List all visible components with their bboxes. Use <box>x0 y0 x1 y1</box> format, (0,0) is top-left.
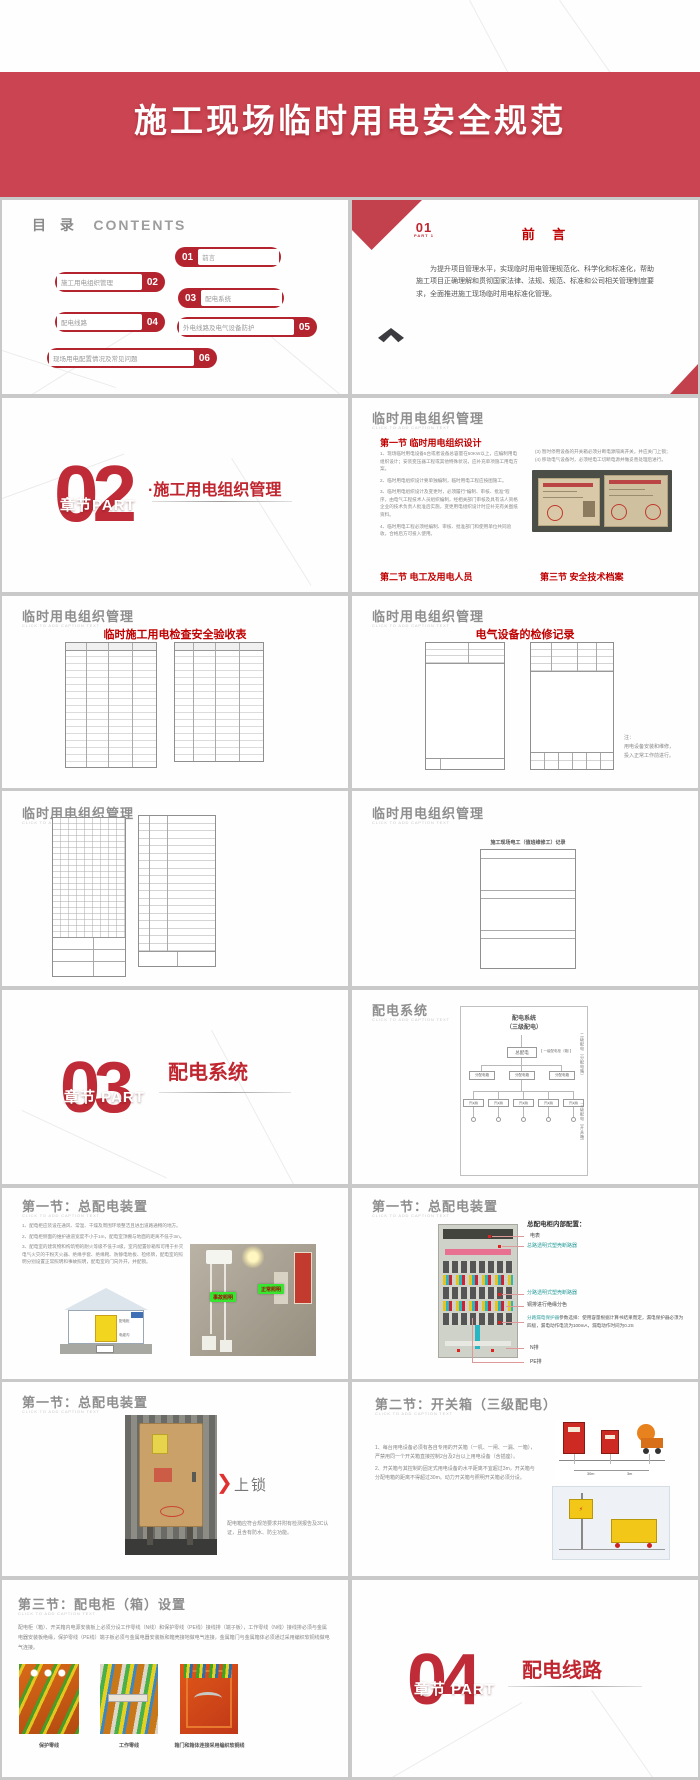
switch-room-diagram: 配电柜 电缆沟 <box>60 1288 152 1354</box>
section1-heading: 第一节 临时用电组织设计 <box>380 436 482 449</box>
body-paragraph: 2、配电柜侧面的维护通道宽度不小于1m，配电室顶棚与地面的距离不低于3m。 <box>22 1233 187 1241</box>
contents-heading-cn: 目 录 <box>32 217 79 233</box>
diagram-sub-box: 分配电箱 <box>549 1071 575 1080</box>
slide-main-dist-3[interactable]: 第一节：总配电装置 CLICK TO ADD CAPTION TEXT ❯ 上锁… <box>2 1382 348 1576</box>
diagram-trench-label: 电缆沟 <box>119 1333 130 1338</box>
toc-item-01[interactable]: 01 前言 <box>175 247 281 267</box>
section-title: 配电线路 <box>522 1654 602 1683</box>
section-title: ·施工用电组织管理 <box>148 476 281 500</box>
body-paragraph: 3、临时用电组织设计及变更时，必须履行“编制、审核、批准”程序，由电气工程技术人… <box>380 488 518 518</box>
photo-caption: 工作零线 <box>100 1742 158 1749</box>
body-paragraph: 2、临时用电组织设计要单独编制，临时用电工程应按图施工。 <box>380 477 518 485</box>
slide-contents[interactable]: 目 录 CONTENTS 01 前言 施工用电组织管理 02 03 配电系统 配… <box>2 200 348 394</box>
toc-item-03[interactable]: 03 配电系统 <box>178 288 284 308</box>
cover-title: 施工现场临时用电安全规范 <box>0 94 700 142</box>
slide-caption: CLICK TO ADD CAPTION TEXT <box>372 425 450 430</box>
cabinet-interior-photo <box>438 1224 518 1358</box>
lighting-photo: 事故照明 正常照明 <box>190 1244 316 1356</box>
checklist-table-left <box>65 642 157 768</box>
toc-num: 04 <box>142 317 163 328</box>
slide-repair-record[interactable]: 临时用电组织管理 CLICK TO ADD CAPTION TEXT 电气设备的… <box>352 596 698 788</box>
slide-section-03[interactable]: 03 章节 PART 配电系统 <box>2 990 348 1184</box>
yellow-box-diagram: ⚡ <box>552 1486 670 1560</box>
toc-label: 配电线路 <box>57 314 142 330</box>
cabinet-config-heading: 总配电柜内部配置： <box>527 1218 586 1228</box>
dimension-label-3m: 3m <box>627 1472 632 1476</box>
slide-caption: CLICK TO ADD CAPTION TEXT <box>22 1213 100 1218</box>
repair-heading: 电气设备的检修记录 <box>352 626 698 642</box>
checklist-table-right <box>174 642 264 762</box>
label-busbar: 铜排进行绝缘分色 <box>527 1301 567 1310</box>
body-paragraph: (3) 暂时停用设备的开关箱必须分断电源隔离开关，并应关门上锁； <box>535 448 683 456</box>
red-triangle-decor <box>352 200 422 250</box>
toc-label: 配电系统 <box>201 290 282 306</box>
slide-caption: CLICK TO ADD CAPTION TEXT <box>375 1411 453 1416</box>
repair-form-left <box>425 642 505 770</box>
label-rcd-head: 分路漏电保护器 <box>527 1315 559 1320</box>
dimension-label-30m: 30m <box>587 1472 594 1476</box>
toc-num: 02 <box>142 277 163 288</box>
toc-num: 01 <box>177 252 198 263</box>
diagram-switch-box: 开关箱 <box>513 1099 534 1107</box>
section-chapter: 章节 PART <box>64 1086 145 1107</box>
diagram-sub-box: 分配电箱 <box>469 1071 495 1080</box>
section-title: 配电系统 <box>168 1056 248 1085</box>
slide-main-dist-1[interactable]: 第一节：总配电装置 CLICK TO ADD CAPTION TEXT 1、配电… <box>2 1188 348 1379</box>
slide-cover[interactable]: 施工现场临时用电安全规范 <box>0 0 700 197</box>
checklist-heading: 临时施工用电检查安全验收表 <box>2 626 348 642</box>
part-mark: 01 PART 1 <box>414 220 434 238</box>
dark-chevron-decor <box>378 328 404 350</box>
arrow-right-icon: ❯ <box>216 1470 233 1495</box>
body-paragraph: 配电柜（箱）、开关箱内电源安装板上必须分设工作零线（N线）和保护零线（PE线）接… <box>18 1624 330 1653</box>
diagram-switch-box: 开关箱 <box>488 1099 509 1107</box>
repair-note: 注： 用电设备安装和维修， 投入正常工作前进行。 <box>624 734 690 761</box>
section3-heading: 第三节 安全技术档案 <box>540 570 624 583</box>
toc-label: 前言 <box>198 249 279 265</box>
record-row-table <box>138 815 216 967</box>
diagram-level3-label: 三级配电（开关箱） <box>579 1103 585 1167</box>
diagram-cabinet-label: 配电柜 <box>119 1319 130 1324</box>
toc-label: 现场用电配置情况及常见问题 <box>49 350 194 366</box>
label-meter: 电表 <box>530 1232 540 1241</box>
preface-body: 为提升项目管理水平，实现临时用电管理规范化、科学化和标准化，帮助施工项目正确理解… <box>416 264 654 301</box>
photo-working-neutral <box>100 1664 158 1734</box>
label-pe-bar: PE排 <box>530 1358 542 1367</box>
slide-org-mgmt[interactable]: 临时用电组织管理 CLICK TO ADD CAPTION TEXT 第一节 临… <box>352 398 698 592</box>
record-grid-table <box>52 817 126 977</box>
slide-main-dist-2[interactable]: 第一节：总配电装置 CLICK TO ADD CAPTION TEXT 总配电柜… <box>352 1188 698 1379</box>
slide-section-04[interactable]: 04 章节 PART 配电线路 <box>352 1580 698 1777</box>
dist-diagram: 配电系统 （三级配电） 总配电 【 一级配电柜（箱）】 分配电箱 分配电箱 分配… <box>460 1006 588 1176</box>
callout-normal-lighting: 正常照明 <box>258 1284 284 1294</box>
red-corner-decor <box>670 364 698 394</box>
cover-banner: 施工现场临时用电安全规范 <box>0 72 700 197</box>
slide-electrician-record[interactable]: 临时用电组织管理 CLICK TO ADD CAPTION TEXT 施工现场电… <box>352 791 698 986</box>
body-paragraph: 4、临时用电工程必须经编制、审核、批准部门和使用单位共同验收，合格后方可投入使用… <box>380 523 518 538</box>
photo-door-bond <box>180 1664 238 1734</box>
slide-section-02[interactable]: 02 章节PART ·施工用电组织管理 <box>2 398 348 592</box>
body-paragraph: 2、开关箱与其控制的固定式用电设备的水平距离不宜超过3m，开关箱与分配电箱的距离… <box>375 1465 537 1483</box>
deco-line <box>211 1030 296 1184</box>
electrician-form-title: 施工现场电工（值班维修工）记录 <box>452 839 604 846</box>
certificates-photo <box>532 470 672 532</box>
slide-preface[interactable]: 01 PART 1 前 言 为提升项目管理水平，实现临时用电管理规范化、科学化和… <box>352 200 698 394</box>
diagram-switch-box: 开关箱 <box>538 1099 559 1107</box>
slide-dist-system[interactable]: 配电系统 CLICK TO ADD CAPTION TEXT 配电系统 （三级配… <box>352 990 698 1184</box>
box-note: 配电箱应符合规范要求并附有检测报告及3C认证，且含有防水、防尘功能。 <box>227 1520 335 1538</box>
toc-item-04[interactable]: 配电线路 04 <box>55 312 165 332</box>
photo-protective-neutral <box>19 1664 79 1734</box>
divider-line <box>152 501 292 502</box>
lock-label: 上锁 <box>234 1474 268 1495</box>
contents-heading-en: CONTENTS <box>93 217 186 233</box>
deco-line <box>591 1690 684 1777</box>
slide-switch-box[interactable]: 第二节：开关箱（三级配电） CLICK TO ADD CAPTION TEXT … <box>352 1382 698 1576</box>
toc-item-05[interactable]: 外电线路及电气设备防护 05 <box>177 317 317 337</box>
toc-num: 06 <box>194 353 215 364</box>
section-chapter: 章节 PART <box>414 1678 495 1699</box>
label-branch-breaker: 分路透明式塑壳断路器 <box>527 1289 577 1298</box>
diagram-level2-label: 二级配电（分配电箱） <box>579 1033 585 1089</box>
label-main-breaker: 总路透明式塑壳断路器 <box>527 1242 577 1251</box>
section2-heading: 第二节 电工及用电人员 <box>380 570 473 583</box>
toc-num: 03 <box>180 293 201 304</box>
outdoor-box-photo <box>125 1415 217 1555</box>
toc-label: 外电线路及电气设备防护 <box>179 319 294 335</box>
body-paragraph: 1、现场临时用电设备5台或者设备总容量在50KW以上，应编制用电组织设计；安装变… <box>380 450 518 473</box>
label-n-bar: N排 <box>530 1344 539 1353</box>
photo-caption: 箱门和箱体连接采用编织软铜线 <box>152 1742 267 1749</box>
callout-accident-lighting: 事故照明 <box>210 1292 236 1302</box>
section-chapter: 章节PART <box>60 494 136 515</box>
part-label: PART 1 <box>414 233 434 238</box>
photo-caption: 保护零线 <box>19 1742 79 1749</box>
slide-caption: CLICK TO ADD CAPTION TEXT <box>372 820 450 825</box>
slide-checklist[interactable]: 临时用电组织管理 CLICK TO ADD CAPTION TEXT 临时施工用… <box>2 596 348 788</box>
diagram-title: 配电系统 （三级配电） <box>461 1013 587 1031</box>
body-paragraph: (4) 移动电气设备时，必须经电工切断电源并做妥善处理后进行。 <box>535 456 683 464</box>
diagram-switch-box: 开关箱 <box>463 1099 484 1107</box>
toc-num: 05 <box>294 322 315 333</box>
diagram-sub-box: 分配电箱 <box>509 1071 535 1080</box>
slide-cabinet-setup[interactable]: 第三节：配电柜（箱）设置 CLICK TO ADD CAPTION TEXT 配… <box>2 1580 348 1777</box>
slide-records[interactable]: 临时用电组织管理 CLICK TO ADD CAPTION TEXT <box>2 791 348 986</box>
body-paragraph: 3、配电室的建筑物和构筑物的耐火等级不低于3级，室内配置砂箱和可用于扑灭电气火灾… <box>22 1243 187 1266</box>
toc-label: 施工用电组织管理 <box>57 274 142 290</box>
toc-item-02[interactable]: 施工用电组织管理 02 <box>55 272 165 292</box>
slide-caption: CLICK TO ADD CAPTION TEXT <box>18 1611 96 1616</box>
slide-caption: CLICK TO ADD CAPTION TEXT <box>372 1017 450 1022</box>
electrician-form <box>480 849 576 969</box>
diagram-root-box: 总配电 <box>507 1047 537 1058</box>
toc-item-06[interactable]: 现场用电配置情况及常见问题 06 <box>47 348 217 368</box>
certificate-right <box>604 475 668 527</box>
divider-line <box>508 1686 642 1687</box>
body-paragraph: 1、配电柜应装设在通风、常温、干燥及周围环境整洁且进出道路通畅的地方。 <box>22 1222 187 1230</box>
certificate-left <box>538 478 600 526</box>
slide-caption: CLICK TO ADD CAPTION TEXT <box>372 1213 450 1218</box>
preface-title: 前 言 <box>482 224 612 243</box>
slide-caption: CLICK TO ADD CAPTION TEXT <box>22 1409 100 1414</box>
mixer-diagram: 30m 3m <box>555 1420 670 1482</box>
label-rcd: 分路漏电保护器参数选择：使用容量根据计算书结果而定，漏电保护器必须为四极，漏电动… <box>527 1314 687 1330</box>
body-paragraph: 1、每台用电设备必须有各自专用的开关箱（一机、一闸、一漏、一箱），严禁用同一个开… <box>375 1444 537 1462</box>
repair-form-right <box>530 642 614 770</box>
divider-line <box>159 1092 291 1093</box>
